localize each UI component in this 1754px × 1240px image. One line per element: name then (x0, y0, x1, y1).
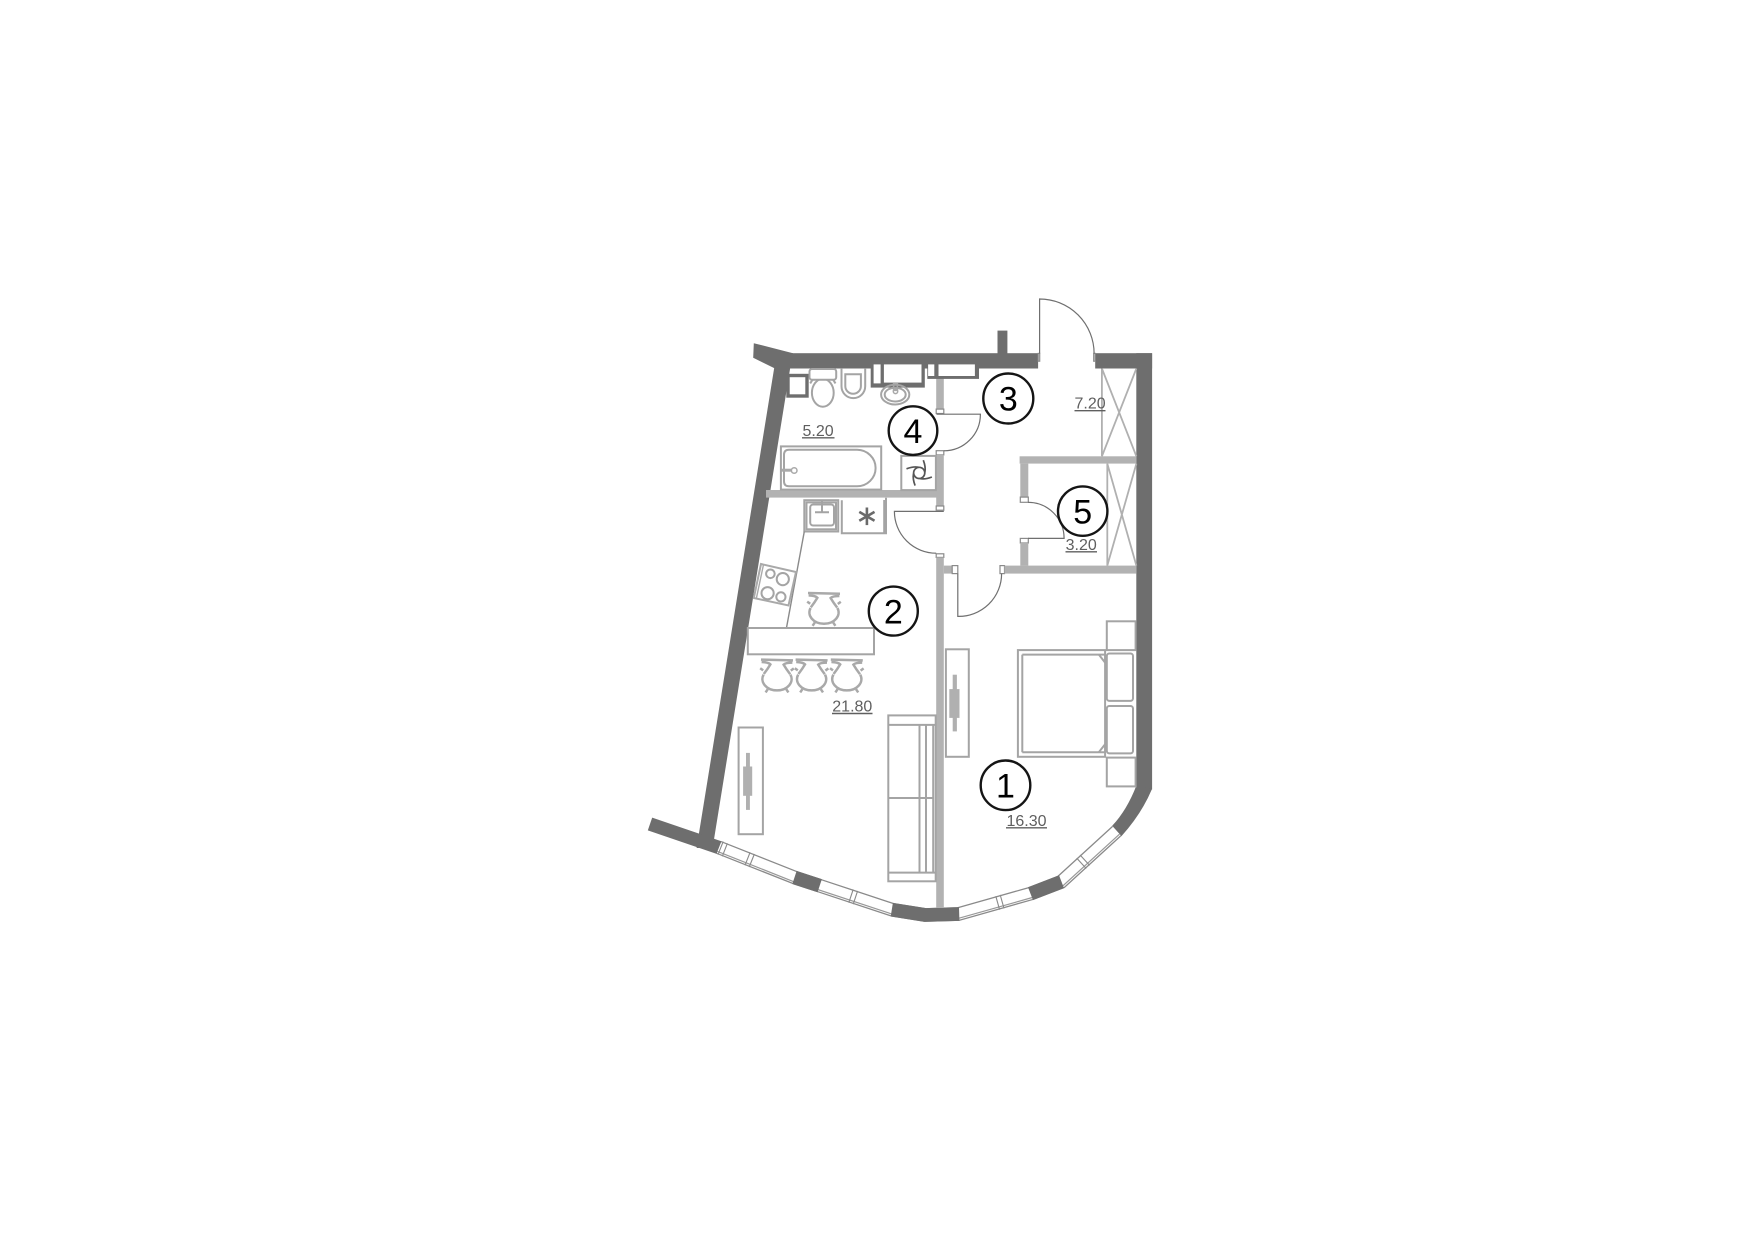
svg-text:4: 4 (904, 413, 923, 451)
svg-text:3: 3 (999, 381, 1018, 419)
svg-text:2: 2 (884, 593, 903, 631)
svg-text:5: 5 (1073, 493, 1092, 531)
svg-text:1: 1 (996, 768, 1015, 806)
